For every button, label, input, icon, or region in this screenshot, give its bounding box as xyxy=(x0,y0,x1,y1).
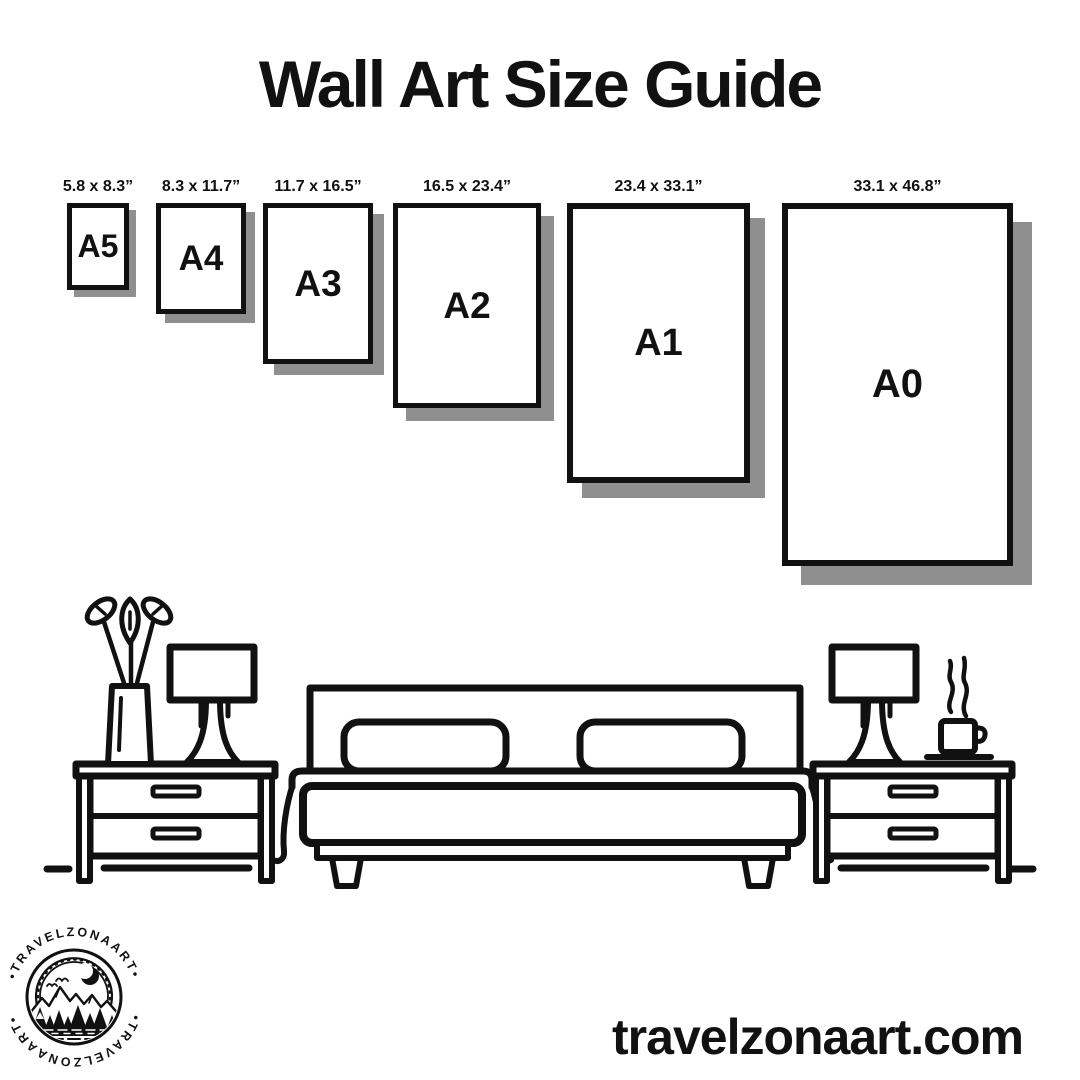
poster-frame: A3 xyxy=(263,203,373,364)
table-lamp-left-icon xyxy=(170,647,254,762)
size-frame-a1: 23.4 x 33.1” A1 xyxy=(567,203,750,483)
poster-frame: A0 xyxy=(782,203,1013,566)
vase-with-plant-icon xyxy=(83,594,175,764)
logo-ring-text-top: •TRAVELZONAART• xyxy=(5,925,143,981)
size-guide-poster: Wall Art Size Guide 5.8 x 8.3” A5 8.3 x … xyxy=(0,0,1080,1080)
nightstand-left-icon xyxy=(76,764,275,881)
website-url: travelzonaart.com xyxy=(595,1008,1040,1066)
poster-frame: A4 xyxy=(156,203,246,314)
poster-frame: A1 xyxy=(567,203,750,483)
size-dimensions-a4: 8.3 x 11.7” xyxy=(162,178,240,196)
size-frame-a2: 16.5 x 23.4” A2 xyxy=(393,203,541,408)
birds-icon xyxy=(47,979,68,987)
steaming-coffee-cup-icon xyxy=(927,658,991,757)
table-lamp-right-icon xyxy=(832,647,916,762)
size-dimensions-a3: 11.7 x 16.5” xyxy=(274,178,361,196)
size-label-a1: A1 xyxy=(634,322,683,365)
size-dimensions-a2: 16.5 x 23.4” xyxy=(423,178,511,196)
poster-frame: A5 xyxy=(67,203,129,290)
size-frame-a5: 5.8 x 8.3” A5 xyxy=(67,203,129,290)
size-dimensions-a5: 5.8 x 8.3” xyxy=(63,178,133,196)
size-label-a5: A5 xyxy=(78,228,119,265)
size-label-a3: A3 xyxy=(294,263,341,305)
size-dimensions-a1: 23.4 x 33.1” xyxy=(614,178,702,196)
size-frame-a3: 11.7 x 16.5” A3 xyxy=(263,203,373,364)
brand-logo: •TRAVELZONAART• •TRAVELZONAART• xyxy=(2,924,152,1074)
size-frame-a4: 8.3 x 11.7” A4 xyxy=(156,203,246,314)
double-bed-icon xyxy=(273,688,831,886)
bedroom-illustration xyxy=(40,580,1040,890)
size-label-a4: A4 xyxy=(179,239,224,279)
size-dimensions-a0: 33.1 x 46.8” xyxy=(853,178,941,196)
size-label-a2: A2 xyxy=(443,285,490,327)
size-frame-a0: 33.1 x 46.8” A0 xyxy=(782,203,1013,566)
nightstand-right-icon xyxy=(813,764,1012,881)
poster-frame: A2 xyxy=(393,203,541,408)
page-title: Wall Art Size Guide xyxy=(0,46,1080,122)
size-label-a0: A0 xyxy=(872,362,923,407)
